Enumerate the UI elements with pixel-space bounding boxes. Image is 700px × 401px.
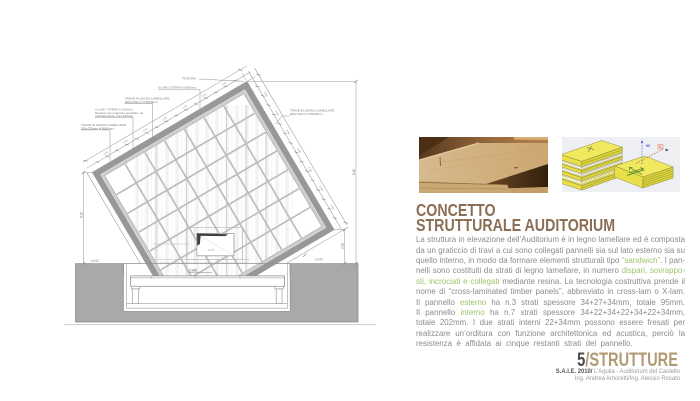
svg-text:200x720mm H 8000mm: 200x720mm H 8000mm [290, 112, 323, 116]
svg-text:90: 90 [646, 144, 650, 148]
svg-text:2.00: 2.00 [263, 91, 269, 98]
svg-text:PINTURA: PINTURA [182, 76, 197, 80]
svg-text:200x720mm H 8000mm: 200x720mm H 8000mm [81, 127, 114, 131]
svg-text:2.00: 2.00 [142, 127, 149, 133]
svg-text:2.00: 2.00 [329, 204, 335, 211]
svg-text:±0.00: ±0.00 [91, 259, 99, 263]
svg-text:2.00: 2.00 [296, 147, 302, 154]
svg-text:2.00: 2.00 [274, 110, 280, 117]
svg-text:2.00: 2.00 [285, 128, 291, 135]
svg-text:X-LAM 3 STRATI H 600mm: X-LAM 3 STRATI H 600mm [158, 86, 196, 90]
svg-text:200x720mm H 8000mm: 200x720mm H 8000mm [125, 100, 158, 104]
svg-text:0: 0 [659, 145, 661, 149]
svg-text:±0.00: ±0.00 [315, 257, 323, 261]
svg-text:2.00: 2.00 [221, 80, 228, 86]
svg-text:8.10: 8.10 [80, 212, 84, 218]
svg-text:2.00: 2.00 [318, 185, 324, 192]
svg-text:2.10: 2.10 [340, 243, 344, 249]
svg-text:2.00: 2.00 [181, 103, 188, 109]
svg-text:2.00: 2.00 [201, 92, 208, 98]
svg-text:2.00: 2.00 [122, 138, 129, 144]
svg-text:-2.000: -2.000 [188, 269, 197, 273]
svg-text:10.00: 10.00 [208, 249, 215, 252]
svg-text:2.00: 2.00 [102, 150, 109, 156]
svg-text:2.00: 2.00 [307, 166, 313, 173]
svg-text:architettoniche max 100mm: architettoniche max 100mm [95, 114, 133, 118]
svg-text:2.00: 2.00 [161, 115, 168, 121]
svg-text:8.10: 8.10 [352, 169, 356, 175]
